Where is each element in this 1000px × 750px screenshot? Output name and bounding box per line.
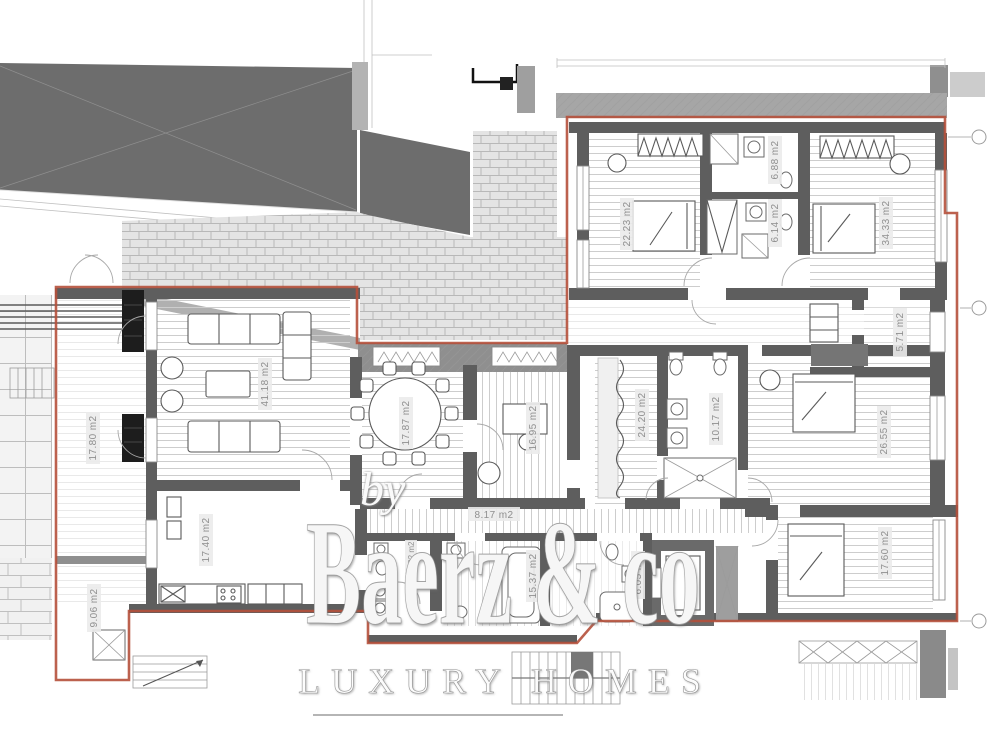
toilet <box>376 561 388 575</box>
section-markers <box>948 130 986 628</box>
exterior-stairs-left <box>133 656 207 688</box>
bed <box>813 204 875 253</box>
room-label-terrace: 17.80 m2 <box>86 412 100 464</box>
room-label-living: 41.18 m2 <box>258 358 272 410</box>
room-label-bath3: 15.37 m2 <box>526 550 540 602</box>
section-marker <box>960 614 986 628</box>
toilet <box>606 544 618 560</box>
svg-text:16.95 m2: 16.95 m2 <box>528 406 539 451</box>
svg-text:6.05 m2: 6.05 m2 <box>633 555 644 594</box>
room-label-innerhall: 24.20 m2 <box>635 389 649 441</box>
closet-rail <box>707 200 737 254</box>
section-marker <box>948 130 986 144</box>
room-label-kitchen: 17.40 m2 <box>199 514 213 566</box>
svg-text:17.60 m2: 17.60 m2 <box>880 531 891 576</box>
room-label-dining: 17.87 m2 <box>399 397 413 449</box>
svg-text:15.37 m2: 15.37 m2 <box>528 554 539 599</box>
floor-plan-drawing: 17.80 m2 41.18 m2 17.87 m2 16.95 m2 17.4… <box>0 0 1000 750</box>
exterior-stairs-center <box>512 652 620 704</box>
elevator-door <box>652 568 661 598</box>
room-label-wc: 2.92 m2 <box>405 540 417 574</box>
room-label-master: 34.33 m2 <box>879 197 893 249</box>
svg-text:2.92 m2: 2.92 m2 <box>407 541 416 570</box>
bed <box>793 374 855 432</box>
room-label-bath4: 6.05 m2 <box>631 551 645 599</box>
bedroom4-furniture <box>788 524 844 596</box>
svg-text:22.23 m2: 22.23 m2 <box>622 202 633 247</box>
svg-text:6.14 m2: 6.14 m2 <box>770 203 781 242</box>
room-label-storage: 9.06 m2 <box>87 584 101 632</box>
neighbour-tiles <box>0 295 52 558</box>
kitchen-furniture <box>159 497 302 604</box>
room-label-bath1: 6.88 m2 <box>768 136 782 184</box>
elevator-core <box>652 540 738 626</box>
svg-text:8.17 m2: 8.17 m2 <box>475 510 514 521</box>
svg-text:41.18 m2: 41.18 m2 <box>260 362 271 407</box>
section-marker <box>960 301 986 315</box>
room-label-masterbath: 10.17 m2 <box>709 393 723 445</box>
room-label-bath2: 6.14 m2 <box>768 199 782 247</box>
room-label-bedroom2: 22.23 m2 <box>620 198 634 250</box>
room-label-closet: 5.71 m2 <box>893 308 907 356</box>
svg-text:17.40 m2: 17.40 m2 <box>201 518 212 563</box>
svg-text:26.55 m2: 26.55 m2 <box>879 410 890 455</box>
svg-text:6.88 m2: 6.88 m2 <box>770 140 781 179</box>
svg-text:17.80 m2: 17.80 m2 <box>88 416 99 461</box>
roof-slab-left <box>0 63 357 212</box>
room-label-study: 16.95 m2 <box>526 402 540 454</box>
armchair <box>161 357 183 379</box>
room-hallway <box>367 509 766 533</box>
armchair <box>161 390 183 412</box>
floor-plan-page: 17.80 m2 41.18 m2 17.87 m2 16.95 m2 17.4… <box>0 0 1000 750</box>
room-label-bedroom4: 17.60 m2 <box>878 527 892 579</box>
svg-text:17.87 m2: 17.87 m2 <box>401 401 412 446</box>
desk <box>503 404 547 434</box>
room-label-bedroom3: 26.55 m2 <box>877 406 891 458</box>
balcony-railing <box>798 641 918 700</box>
svg-text:34.33 m2: 34.33 m2 <box>881 201 892 246</box>
svg-text:10.17 m2: 10.17 m2 <box>711 397 722 442</box>
bed <box>633 201 695 251</box>
svg-text:24.20 m2: 24.20 m2 <box>637 393 648 438</box>
coffee-table <box>206 371 250 397</box>
svg-text:9.06 m2: 9.06 m2 <box>89 588 100 627</box>
svg-text:5.71 m2: 5.71 m2 <box>895 312 906 351</box>
room-label-hallway: 8.17 m2 <box>468 507 520 521</box>
